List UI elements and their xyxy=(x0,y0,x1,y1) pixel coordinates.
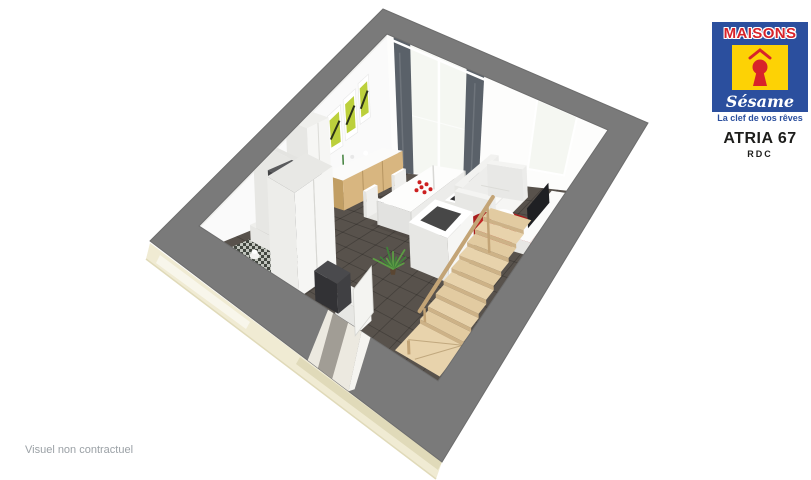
plan-level: RDC xyxy=(700,149,811,159)
keyhole-icon-svg xyxy=(740,47,780,89)
maisons-sesame-logo: MAISONS Sésame xyxy=(712,22,808,112)
floorplan-3d-render xyxy=(0,0,811,480)
logo-tagline: La clef de vos rêves xyxy=(703,113,811,123)
plan-model-name: ATRIA 67 xyxy=(700,130,811,148)
floorplan-page: MAISONS Sésame La clef de vos rêves ATRI… xyxy=(0,0,811,480)
logo-sesame-text: Sésame xyxy=(726,93,794,110)
disclaimer-text: Visuel non contractuel xyxy=(25,444,133,456)
logo-maisons-text: MAISONS xyxy=(724,25,797,42)
keyhole-icon xyxy=(732,45,788,90)
